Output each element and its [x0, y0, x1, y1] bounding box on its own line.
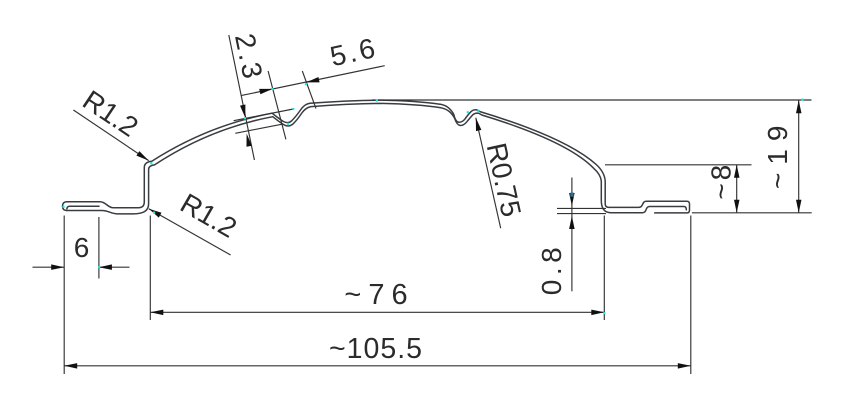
svg-text:6: 6: [74, 232, 90, 263]
svg-text:R0.75: R0.75: [481, 140, 527, 220]
svg-text:R1.2: R1.2: [175, 187, 242, 243]
svg-text:2.3: 2.3: [229, 31, 269, 84]
svg-text:0.8: 0.8: [536, 243, 567, 295]
svg-text:R1.2: R1.2: [77, 84, 143, 143]
svg-text:~8: ~8: [705, 162, 736, 200]
svg-text:~19: ~19: [762, 118, 793, 190]
svg-text:~105.5: ~105.5: [329, 333, 423, 365]
svg-text:5.6: 5.6: [327, 32, 380, 73]
svg-text:~76: ~76: [344, 279, 414, 311]
